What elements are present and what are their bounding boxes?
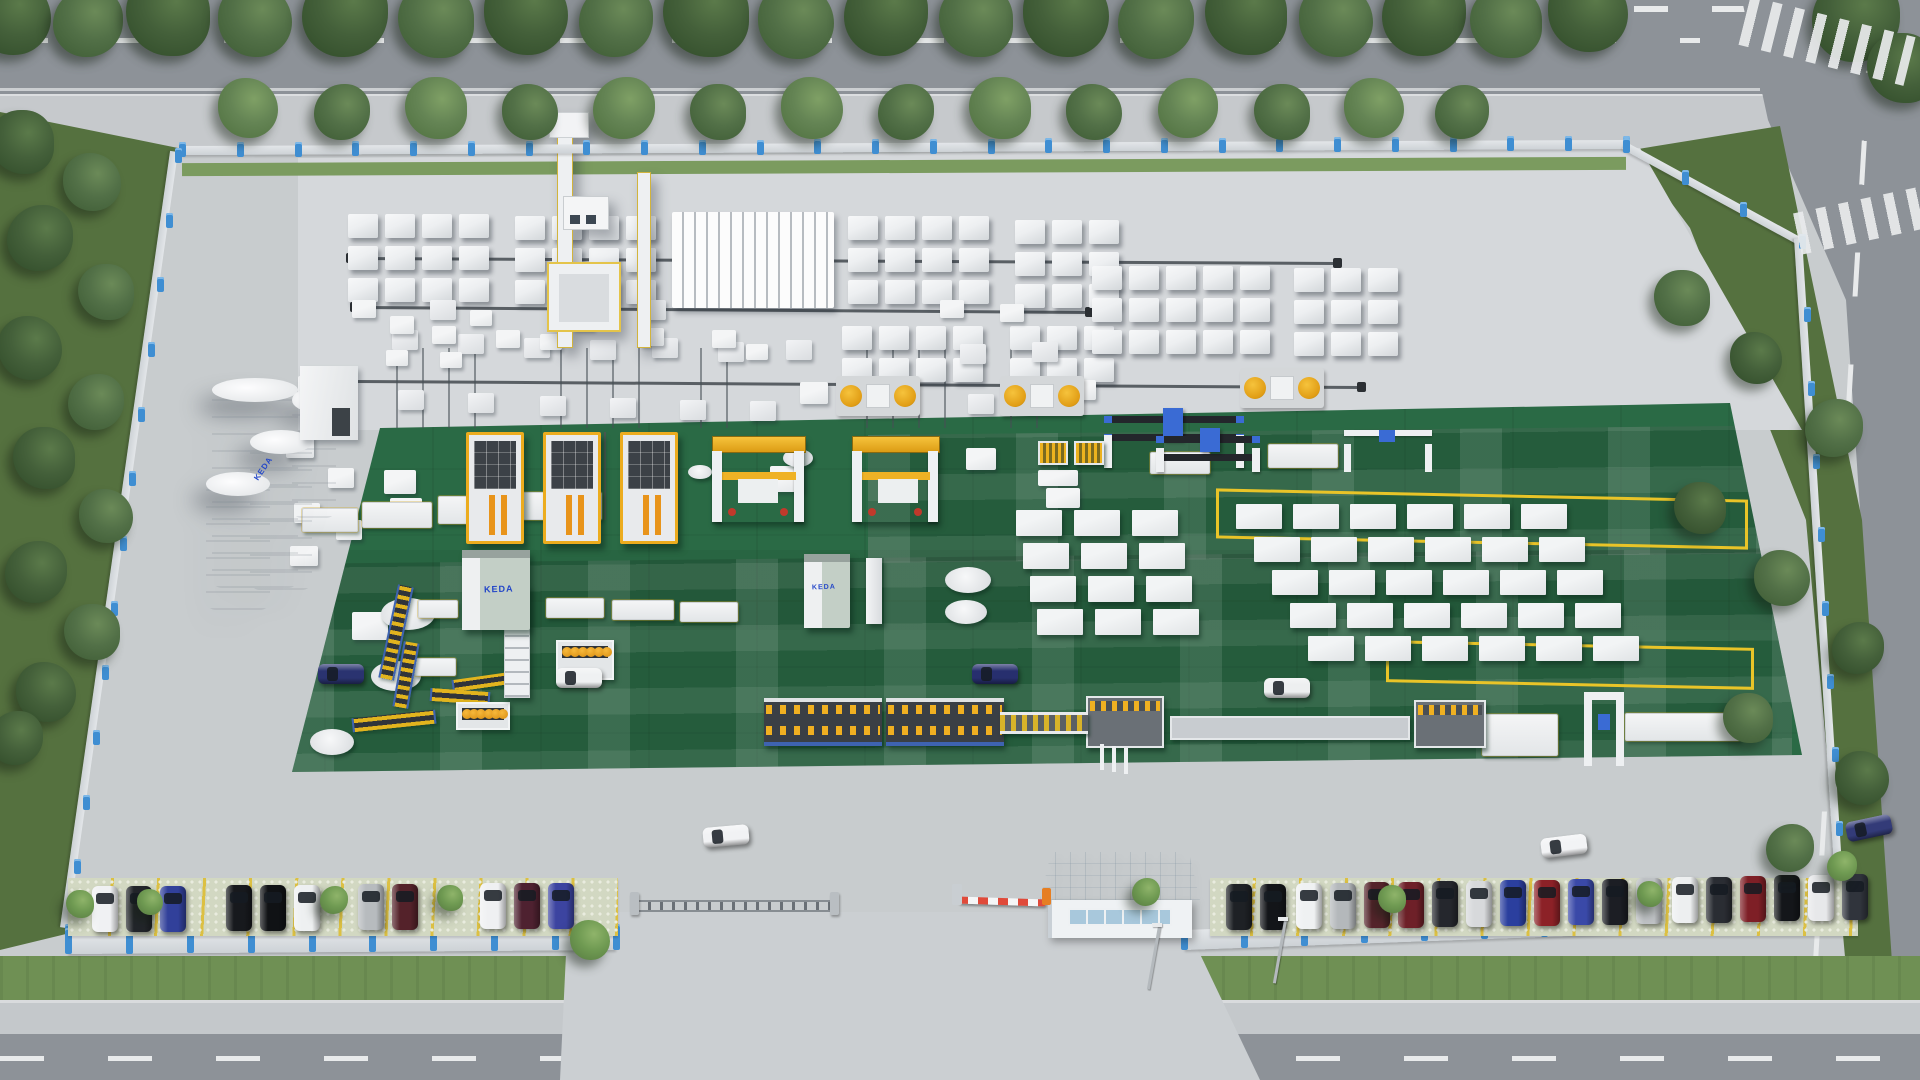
street-light-head — [1278, 917, 1288, 921]
zebra-crossing — [1738, 0, 1915, 86]
street-furniture-layer — [0, 0, 1920, 1080]
street-light-pole — [1273, 920, 1287, 984]
street-light-head — [1152, 923, 1162, 927]
zebra-crossing — [1793, 187, 1920, 254]
aac-plant-aerial-scene: KEDA KEDA KEDA — [0, 0, 1920, 1080]
street-light-pole — [1147, 926, 1161, 990]
